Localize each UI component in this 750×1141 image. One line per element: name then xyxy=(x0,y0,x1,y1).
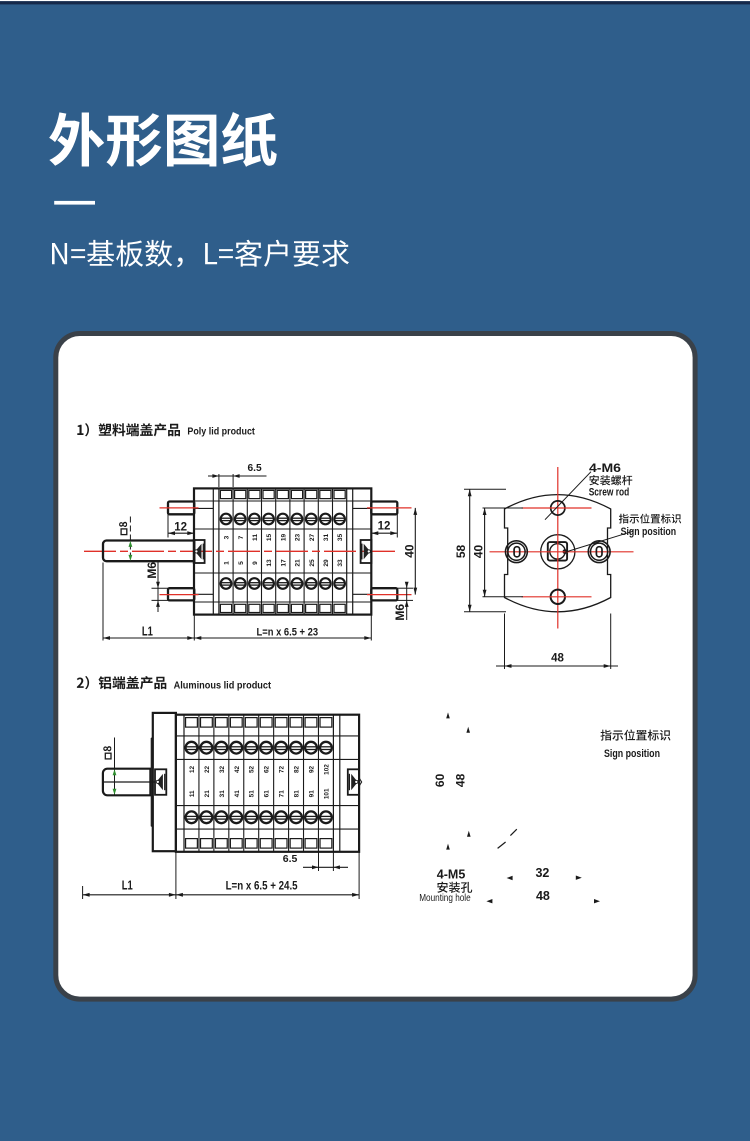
svg-text:Aluminous lid product: Aluminous lid product xyxy=(174,680,272,692)
svg-text:58: 58 xyxy=(454,545,468,559)
svg-text:7: 7 xyxy=(238,535,245,539)
svg-text:62: 62 xyxy=(264,766,271,774)
svg-text:48: 48 xyxy=(536,889,550,903)
svg-text:27: 27 xyxy=(309,534,316,542)
svg-text:40: 40 xyxy=(471,545,485,559)
svg-text:22: 22 xyxy=(204,766,211,774)
svg-text:3: 3 xyxy=(224,535,231,539)
svg-text:11: 11 xyxy=(189,790,196,797)
svg-text:51: 51 xyxy=(249,790,256,798)
svg-text:71: 71 xyxy=(279,790,286,798)
svg-text:101: 101 xyxy=(323,788,330,799)
svg-text:40: 40 xyxy=(402,544,416,558)
svg-text:61: 61 xyxy=(264,790,271,798)
svg-text:21: 21 xyxy=(204,790,211,798)
svg-text:Mounting hole: Mounting hole xyxy=(419,893,471,904)
svg-text:15: 15 xyxy=(266,534,273,542)
svg-text:92: 92 xyxy=(308,766,315,774)
svg-text:60: 60 xyxy=(433,773,447,787)
svg-text:32: 32 xyxy=(535,866,549,880)
svg-text:L1: L1 xyxy=(122,879,133,893)
svg-text:9: 9 xyxy=(252,561,259,565)
svg-text:41: 41 xyxy=(234,790,241,798)
svg-text:L=n x 6.5 + 24.5: L=n x 6.5 + 24.5 xyxy=(226,878,298,892)
svg-text:12: 12 xyxy=(189,766,196,774)
svg-text:L1: L1 xyxy=(142,625,153,639)
svg-text:Screw rod: Screw rod xyxy=(589,486,630,498)
svg-text:72: 72 xyxy=(279,766,286,774)
svg-text:Sign position: Sign position xyxy=(621,526,677,538)
svg-text:82: 82 xyxy=(294,766,301,774)
svg-text:81: 81 xyxy=(294,790,301,798)
svg-text:M6: M6 xyxy=(393,604,407,621)
svg-text:17: 17 xyxy=(280,559,287,567)
svg-text:L=n x 6.5 + 23: L=n x 6.5 + 23 xyxy=(257,626,319,638)
svg-text:33: 33 xyxy=(337,559,344,567)
svg-text:102: 102 xyxy=(323,764,330,775)
svg-text:29: 29 xyxy=(323,559,330,567)
svg-text:21: 21 xyxy=(295,559,302,567)
svg-text:31: 31 xyxy=(323,534,330,542)
svg-text:M6: M6 xyxy=(145,562,159,579)
svg-text:6.5: 6.5 xyxy=(248,463,262,474)
svg-text:32: 32 xyxy=(219,766,226,774)
svg-text:Poly lid product: Poly lid product xyxy=(187,425,255,437)
svg-text:4-M5: 4-M5 xyxy=(437,868,466,882)
svg-text:52: 52 xyxy=(249,766,256,774)
svg-text:23: 23 xyxy=(295,534,302,542)
svg-text:1: 1 xyxy=(224,561,231,565)
svg-text:25: 25 xyxy=(309,559,316,567)
svg-text:19: 19 xyxy=(280,534,287,542)
svg-text:5: 5 xyxy=(238,561,245,565)
svg-text:42: 42 xyxy=(234,766,241,774)
svg-text:12: 12 xyxy=(378,521,391,533)
svg-text:31: 31 xyxy=(219,790,226,798)
svg-text:35: 35 xyxy=(337,534,344,542)
svg-text:11: 11 xyxy=(252,534,259,541)
svg-text:48: 48 xyxy=(454,773,468,787)
svg-text:4-M6: 4-M6 xyxy=(589,461,621,475)
svg-text:Sign position: Sign position xyxy=(604,748,660,760)
svg-text:48: 48 xyxy=(551,653,564,665)
svg-text:12: 12 xyxy=(174,521,187,533)
svg-text:6.5: 6.5 xyxy=(283,853,298,865)
svg-text:91: 91 xyxy=(308,790,315,798)
svg-text:13: 13 xyxy=(266,559,273,567)
